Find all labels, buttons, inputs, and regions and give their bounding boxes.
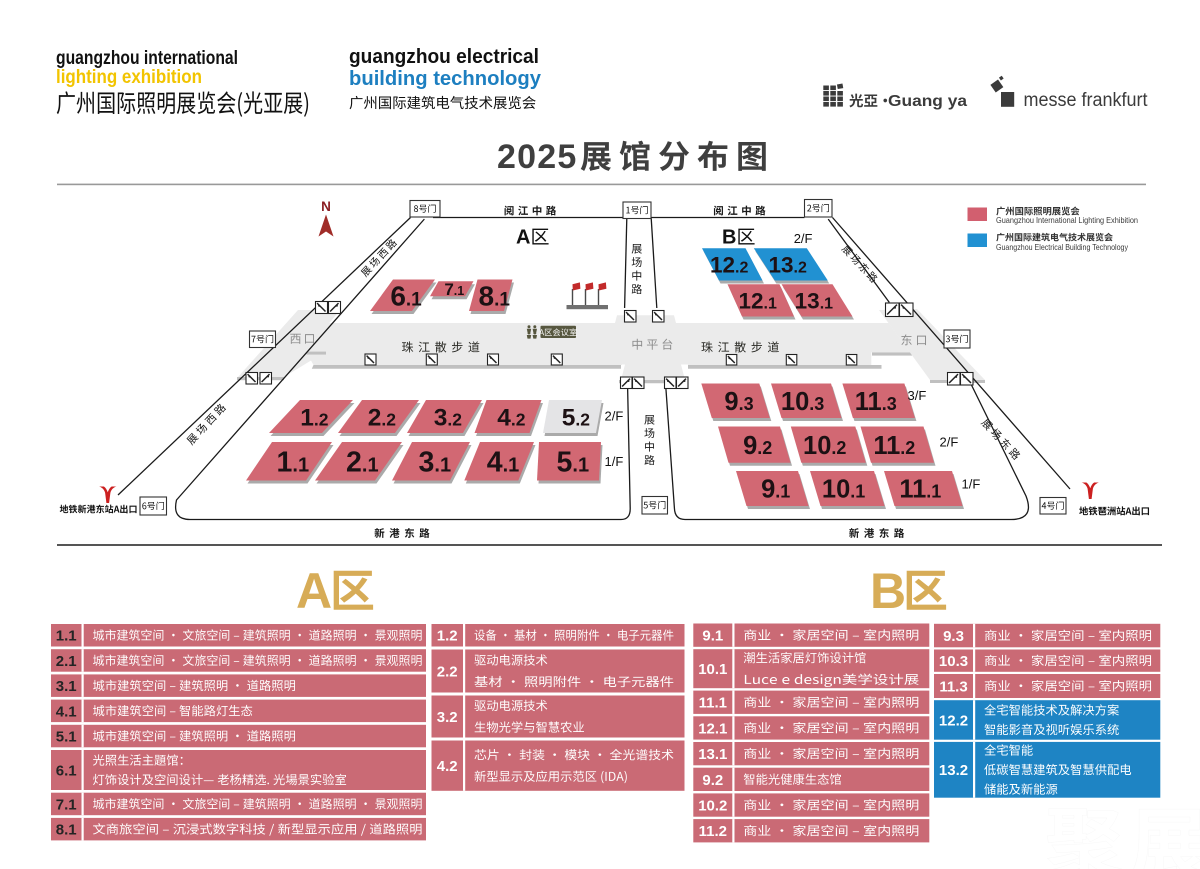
svg-text:1.2: 1.2 (437, 628, 458, 645)
svg-text:2/F: 2/F (605, 409, 624, 424)
svg-text:.1: .1 (434, 455, 451, 477)
svg-text:11.2: 11.2 (699, 823, 727, 840)
svg-text:5: 5 (557, 447, 573, 479)
svg-text:13: 13 (795, 288, 820, 313)
svg-text:9: 9 (761, 476, 775, 504)
svg-text:Guang ya: Guang ya (888, 93, 967, 110)
svg-text:1: 1 (277, 447, 293, 479)
svg-text:A: A (296, 563, 332, 619)
svg-text:5.1: 5.1 (56, 729, 77, 746)
svg-text:9.2: 9.2 (702, 772, 723, 789)
svg-text:7: 7 (444, 280, 453, 299)
svg-text:4.2: 4.2 (437, 758, 458, 775)
svg-text:7.1: 7.1 (56, 796, 77, 813)
svg-text:.1: .1 (292, 455, 309, 477)
svg-text:.3: .3 (739, 394, 754, 414)
svg-text:6.1: 6.1 (56, 762, 77, 779)
svg-text:2: 2 (346, 447, 362, 479)
svg-text:11: 11 (899, 476, 926, 504)
svg-text:.1: .1 (494, 289, 510, 310)
svg-text:3/F: 3/F (908, 388, 927, 403)
svg-text:1/F: 1/F (605, 454, 624, 469)
svg-text:B: B (722, 227, 736, 249)
svg-text:.3: .3 (809, 394, 824, 414)
svg-text:.1: .1 (850, 482, 865, 502)
svg-text:lighting exhibition: lighting exhibition (56, 66, 202, 88)
svg-text:8: 8 (479, 280, 495, 311)
svg-text:.1: .1 (362, 455, 379, 477)
svg-text:A: A (516, 227, 530, 249)
svg-text:2/F: 2/F (794, 231, 813, 246)
svg-text:3: 3 (419, 447, 435, 479)
svg-text:9.3: 9.3 (943, 628, 964, 645)
svg-text:4: 4 (497, 404, 511, 431)
svg-text:12: 12 (738, 288, 763, 313)
svg-text:13.1: 13.1 (698, 746, 727, 763)
svg-text:13: 13 (768, 252, 793, 277)
svg-text:2: 2 (368, 404, 382, 431)
svg-text:10: 10 (781, 388, 809, 416)
svg-text:B: B (870, 563, 906, 619)
svg-text:10.3: 10.3 (939, 653, 968, 670)
svg-text:12.1: 12.1 (698, 720, 727, 737)
svg-text:11: 11 (855, 388, 882, 416)
svg-text:3.1: 3.1 (56, 678, 77, 695)
svg-text:2.1: 2.1 (56, 653, 77, 670)
svg-text:.2: .2 (575, 409, 590, 429)
svg-text:10.1: 10.1 (698, 661, 727, 678)
svg-text:.1: .1 (406, 289, 422, 310)
svg-text:.2: .2 (900, 438, 915, 458)
svg-text:.2: .2 (447, 409, 462, 429)
svg-text:8.1: 8.1 (56, 822, 77, 839)
svg-text:1.1: 1.1 (56, 628, 77, 645)
svg-text:.2: .2 (757, 438, 772, 458)
svg-text:5: 5 (562, 404, 576, 431)
svg-text:10: 10 (803, 432, 831, 460)
svg-text:9: 9 (724, 388, 738, 416)
svg-text:3.2: 3.2 (437, 709, 458, 726)
svg-text:11.1: 11.1 (699, 695, 727, 712)
svg-text:2/F: 2/F (940, 435, 959, 450)
svg-text:.1: .1 (764, 295, 777, 312)
svg-text:.2: .2 (511, 409, 526, 429)
svg-text:1: 1 (300, 404, 314, 431)
svg-text:12.2: 12.2 (939, 712, 968, 729)
svg-text:11: 11 (873, 432, 900, 460)
svg-text:4.1: 4.1 (56, 703, 77, 720)
svg-text:.2: .2 (735, 259, 748, 276)
svg-text:messe frankfurt: messe frankfurt (1024, 90, 1149, 111)
svg-text:10.2: 10.2 (698, 798, 727, 815)
svg-text:Guangzhou International Lighti: Guangzhou International Lighting Exhibit… (996, 215, 1138, 225)
svg-text:9.1: 9.1 (702, 628, 723, 645)
svg-text:3: 3 (434, 404, 448, 431)
svg-text:building technology: building technology (349, 68, 542, 90)
svg-text:.1: .1 (503, 455, 520, 477)
svg-text:11.3: 11.3 (939, 678, 967, 695)
svg-text:.1: .1 (572, 455, 589, 477)
svg-text:.2: .2 (381, 409, 396, 429)
svg-text:4: 4 (487, 447, 503, 479)
svg-text:13.2: 13.2 (939, 762, 968, 779)
svg-text:.1: .1 (775, 482, 790, 502)
svg-text:2025: 2025 (497, 138, 577, 176)
svg-text:1/F: 1/F (962, 477, 981, 492)
svg-text:.2: .2 (314, 409, 329, 429)
svg-text:N: N (321, 199, 331, 214)
svg-text:12: 12 (710, 252, 735, 277)
svg-text:.1: .1 (820, 295, 833, 312)
svg-text:9: 9 (743, 432, 757, 460)
svg-text:10: 10 (822, 476, 850, 504)
svg-text:.2: .2 (794, 259, 807, 276)
svg-text:6: 6 (390, 280, 406, 311)
svg-text:guangzhou electrical: guangzhou electrical (349, 46, 539, 68)
svg-text:.1: .1 (454, 284, 464, 298)
svg-text:.2: .2 (831, 438, 846, 458)
svg-text:Guangzhou Electrical Building: Guangzhou Electrical Building Technology (996, 242, 1129, 252)
svg-text:.1: .1 (926, 482, 941, 502)
svg-text:2.2: 2.2 (437, 663, 458, 680)
svg-text:.3: .3 (882, 394, 897, 414)
